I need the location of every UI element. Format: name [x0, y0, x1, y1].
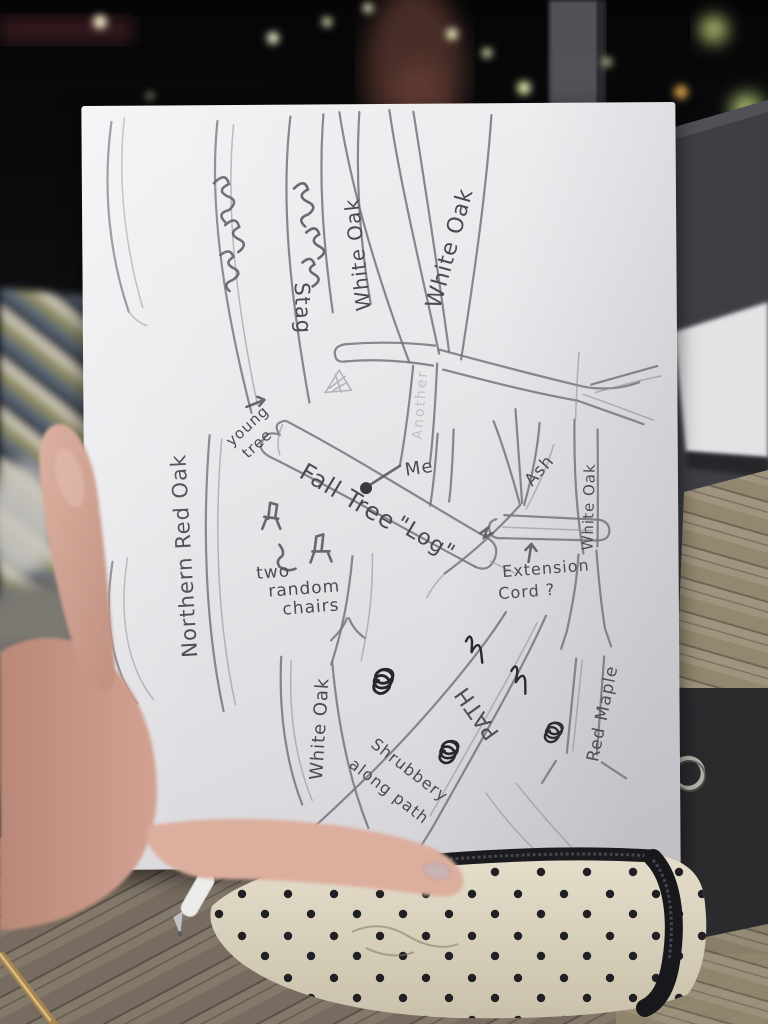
white-pen [167, 869, 217, 938]
palm [0, 638, 157, 930]
gold-pen [0, 954, 54, 1024]
hand [0, 424, 463, 930]
foreground-objects [0, 0, 768, 1024]
photo-of-hand-drawn-map: Stag White Oak White Oak Another Norther… [0, 0, 768, 1024]
